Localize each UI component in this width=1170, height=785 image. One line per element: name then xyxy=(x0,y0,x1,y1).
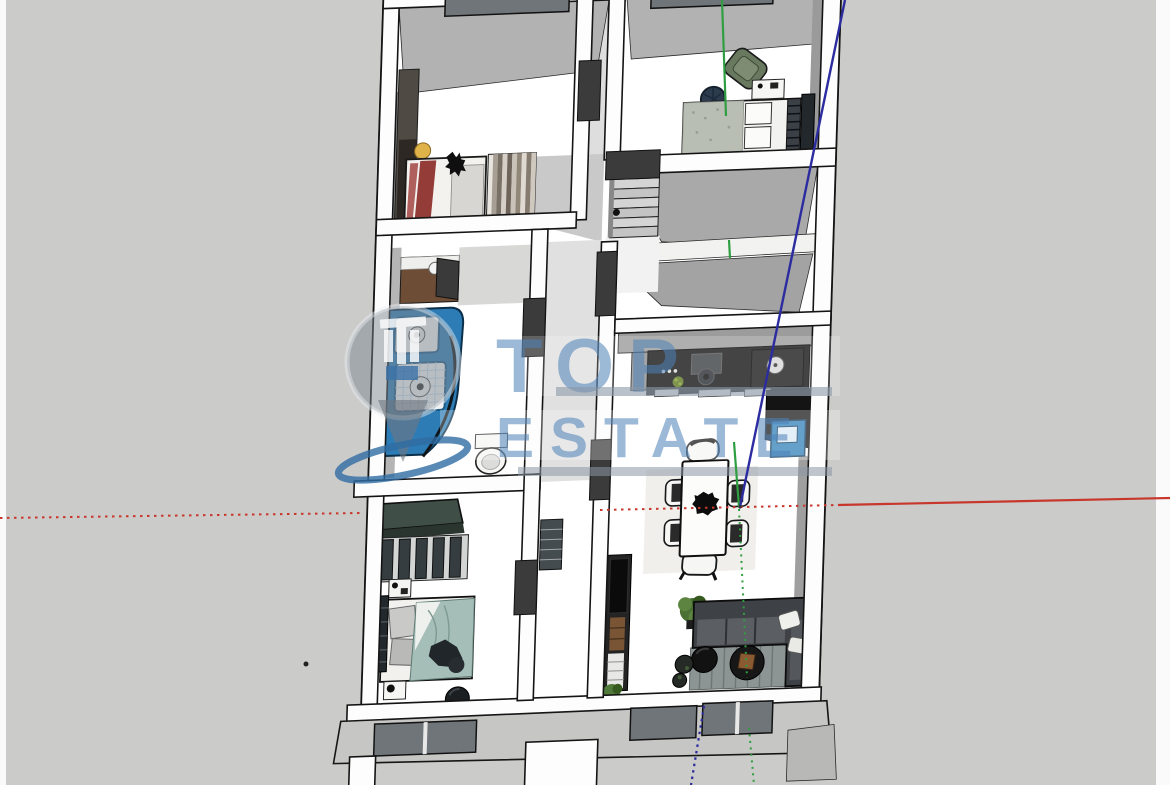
facade-pier-left xyxy=(348,756,375,785)
hall-radiator xyxy=(539,519,563,570)
pillow-2 xyxy=(744,127,771,149)
slatted-bench xyxy=(377,535,468,582)
bath-floor-shade xyxy=(458,245,532,306)
door-bedroom-tl xyxy=(577,60,601,121)
mirror xyxy=(436,257,459,300)
left-edge-strip xyxy=(0,0,6,785)
axes-origin xyxy=(738,505,741,508)
facade-pier-right xyxy=(786,724,838,781)
pillow-1 xyxy=(745,103,772,125)
bed-tr-textured-blanket xyxy=(682,101,744,157)
nightstand-item-2 xyxy=(770,82,778,88)
bed-tl-gray-blanket xyxy=(450,165,484,220)
pillow-bl-1 xyxy=(389,605,417,638)
model-viewport: TOP ESTATE xyxy=(0,0,1170,785)
tv-screen xyxy=(609,559,629,614)
headboard xyxy=(800,94,815,154)
coffee-table-tray xyxy=(738,653,755,669)
facade-window-mid xyxy=(630,706,697,741)
green-axis-tick xyxy=(729,240,730,258)
facade-porch xyxy=(524,739,598,785)
watermark-underline-1 xyxy=(556,387,832,396)
stray-dot xyxy=(304,662,309,667)
nightstand-tr xyxy=(752,79,785,99)
floor-plan-render: TOP ESTATE xyxy=(0,0,1170,785)
sofa-seats xyxy=(697,616,786,645)
lamp-ball xyxy=(414,143,431,160)
watermark-underline-2 xyxy=(518,467,832,476)
watermark-line-2: ESTATE xyxy=(496,406,808,470)
door-hall-1 xyxy=(595,251,617,316)
watermark-line-1: TOP xyxy=(496,324,693,409)
door-stairwell xyxy=(605,150,660,180)
door-bedroom-bl xyxy=(514,560,538,615)
right-edge-strip xyxy=(1156,0,1170,785)
nightstand-bl-bottom xyxy=(383,681,406,700)
striped-rug xyxy=(486,153,536,221)
tv-shelf-wood xyxy=(609,617,626,652)
